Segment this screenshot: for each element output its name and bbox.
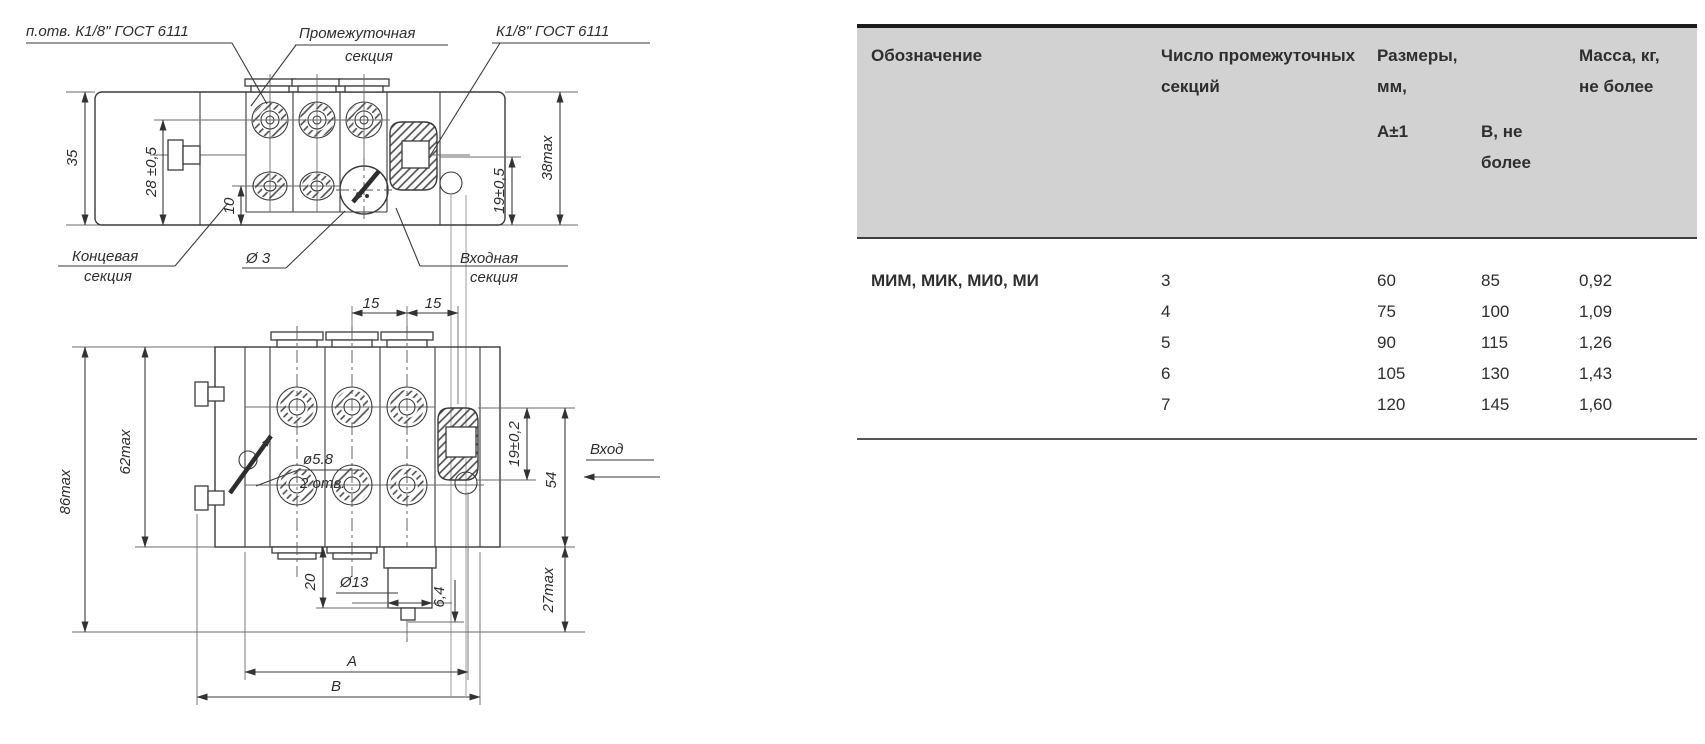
table-row: 6 105 130 1,43	[871, 358, 1683, 389]
dim-15-right: 15	[425, 295, 442, 312]
dim-35-label: 35	[64, 149, 81, 166]
dim-A-label: A	[346, 653, 357, 670]
dim-62max: 62max	[117, 347, 215, 547]
dim-15-left: 15	[363, 295, 380, 312]
cell-mass: 1,60	[1579, 389, 1683, 420]
dim-19-02: 19±0,2	[477, 408, 536, 480]
bottom-flanges	[272, 547, 377, 559]
cell-mass: 0,92	[1579, 265, 1683, 296]
dim-38max-label: 38max	[539, 135, 556, 181]
cell-sections: 7	[1161, 389, 1377, 420]
dim-20-label: 20	[302, 573, 319, 591]
dim-54-label: 54	[543, 472, 560, 489]
cell-a: 120	[1377, 389, 1481, 420]
col-mass: Масса, кг, не более	[1579, 40, 1669, 237]
table-row: МИМ, МИК, МИ0, МИ 3 60 85 0,92	[871, 265, 1683, 296]
cell-mass: 1,26	[1579, 327, 1683, 358]
valve-body-front	[72, 347, 500, 547]
inlet-flow-label: Вход	[584, 441, 660, 477]
dim-27max: 27max	[540, 547, 565, 632]
dim-10-label: 10	[221, 197, 238, 214]
cell-a: 90	[1377, 327, 1481, 358]
dim-86max-label: 86max	[57, 469, 74, 515]
col-dim-b: В, не более	[1481, 116, 1551, 178]
cell-sections: 6	[1161, 358, 1377, 389]
dim-6-4-label: 6,4	[431, 587, 448, 608]
cell-b: 85	[1481, 265, 1579, 296]
svg-text:К1/8" ГОСТ 6111: К1/8" ГОСТ 6111	[496, 23, 609, 40]
cell-sections: 3	[1161, 265, 1377, 296]
svg-text:Вход: Вход	[590, 441, 623, 458]
dim-35: 35	[64, 92, 95, 225]
svg-text:ø5.8: ø5.8	[303, 451, 334, 468]
table-row: 4 75 100 1,09	[871, 296, 1683, 327]
callout-inlet-section: Входная секция	[396, 208, 568, 286]
cell-b: 100	[1481, 296, 1579, 327]
callout-dia3: Ø 3	[242, 211, 345, 268]
cell-b: 145	[1481, 389, 1579, 420]
svg-text:Ø13: Ø13	[339, 574, 369, 591]
callout-intermediate-section: Промежуточная секция	[251, 25, 448, 106]
cell-sections: 4	[1161, 296, 1377, 327]
svg-text:секция: секция	[345, 48, 393, 65]
dim-38max: 38max	[539, 92, 560, 225]
end-plate-plug	[150, 140, 246, 170]
top-view-drawing: 35 28 ±0,5 10 19±0,5 38max п.отв. К1/8" …	[0, 0, 700, 292]
inlet-boss-front	[438, 408, 478, 494]
cell-a: 105	[1377, 358, 1481, 389]
spec-table-header: Обозначение Число промежуточных секций Р…	[857, 24, 1697, 239]
dim-B-label: B	[331, 678, 341, 695]
svg-text:Входная: Входная	[460, 250, 518, 267]
svg-text:п.отв. К1/8" ГОСТ 6111: п.отв. К1/8" ГОСТ 6111	[26, 23, 189, 40]
cell-mass: 1,43	[1579, 358, 1683, 389]
cell-b: 130	[1481, 358, 1579, 389]
dim-19-05-label: 19±0,5	[491, 167, 508, 213]
dim-19-02-label: 19±0,2	[506, 420, 523, 466]
svg-text:Концевая: Концевая	[72, 248, 138, 265]
spec-table-body: МИМ, МИК, МИ0, МИ 3 60 85 0,92 4 75 100 …	[857, 239, 1697, 440]
col-designation: Обозначение	[871, 40, 1161, 237]
svg-text:Промежуточная: Промежуточная	[299, 25, 415, 42]
dim-B: B	[197, 514, 480, 705]
mounting-bolts	[195, 382, 271, 510]
dim-19-05: 19±0,5	[440, 157, 521, 225]
dim-62max-label: 62max	[117, 429, 134, 475]
table-row: 5 90 115 1,26	[871, 327, 1683, 358]
designation-value: МИМ, МИК, МИ0, МИ	[871, 265, 1161, 296]
svg-text:секция: секция	[84, 268, 132, 285]
col-dimensions: Размеры, мм,	[1377, 40, 1487, 102]
svg-text:секция: секция	[470, 269, 518, 286]
projection-lines	[451, 195, 466, 292]
svg-text:Ø 3: Ø 3	[245, 250, 271, 267]
table-row: 7 120 145 1,60	[871, 389, 1683, 420]
drawing-sheet: { "top_view": { "callout_hole": "п.отв. …	[0, 0, 1705, 744]
cell-a: 60	[1377, 265, 1481, 296]
col-dim-a: А±1	[1377, 116, 1481, 178]
cell-b: 115	[1481, 327, 1579, 358]
cell-sections: 5	[1161, 327, 1377, 358]
front-view-drawing: 15 15 ø5.8 2 отв.	[0, 292, 700, 744]
col-sections: Число промежуточных секций	[1161, 40, 1361, 237]
spec-table: Обозначение Число промежуточных секций Р…	[857, 24, 1697, 440]
callout-end-section: Концевая секция	[58, 203, 228, 285]
dim-27max-label: 27max	[540, 567, 557, 614]
inlet-boss-top	[390, 122, 470, 194]
cell-mass: 1,09	[1579, 296, 1683, 327]
dim-28-label: 28 ±0,5	[143, 146, 160, 198]
cell-a: 75	[1377, 296, 1481, 327]
